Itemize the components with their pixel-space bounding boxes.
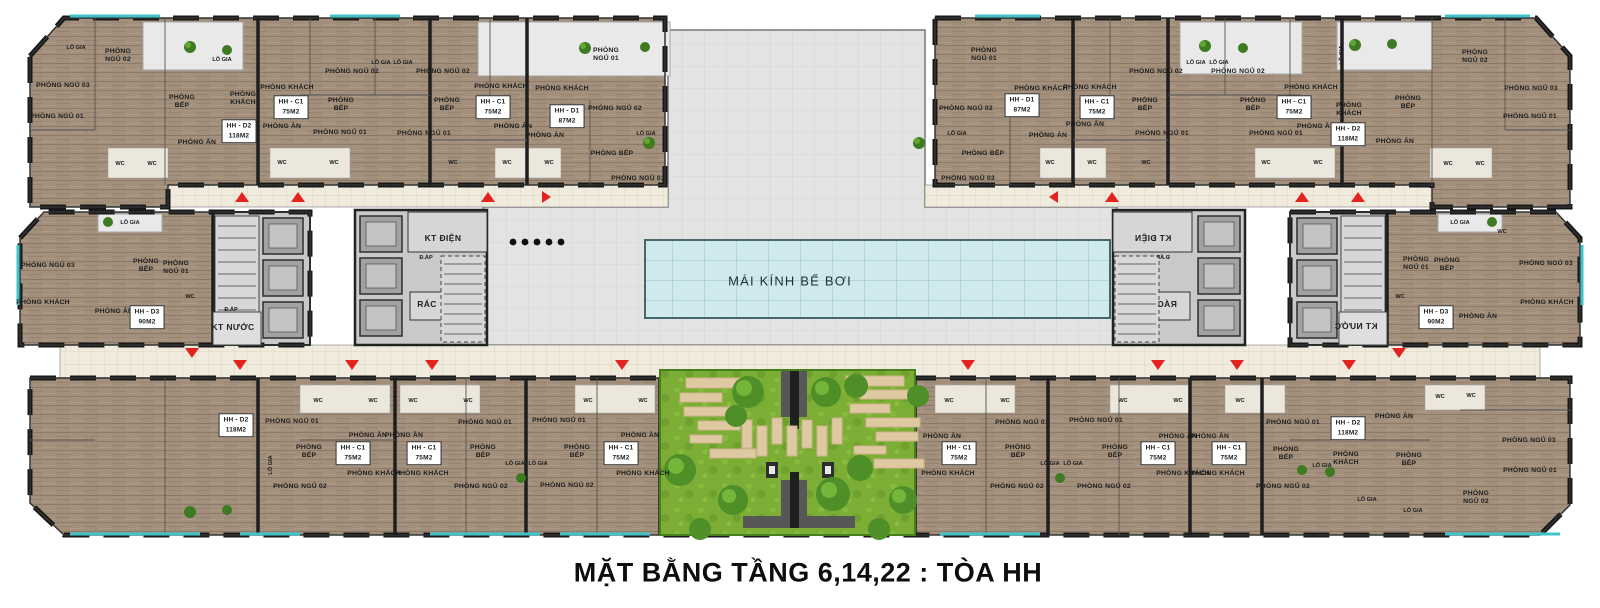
unit-code-label: HH - D1 87M2 xyxy=(1005,93,1040,117)
room-label: PHÒNG BẾP xyxy=(1102,444,1128,460)
room-label: PHÒNG NGỦ 03 xyxy=(1504,85,1558,93)
room-label: PHÒNG NGỦ 02 xyxy=(540,482,594,490)
room-label: PHÒNG ĂN xyxy=(178,139,216,147)
room-label: PHÒNG NGỦ 01 xyxy=(1266,419,1320,427)
room-label: PHÒNG NGỦ 01 xyxy=(458,419,512,427)
wc-label: WC xyxy=(448,160,457,166)
room-label: PHÒNG NGỦ 03 xyxy=(941,175,995,183)
service-room-label: Đ.ÁP xyxy=(1156,255,1169,261)
room-label: PHÒNG ĂN xyxy=(1191,433,1229,441)
room-label: PHÒNG NGỦ 03 xyxy=(36,82,90,90)
room-label: PHÒNG KHÁCH xyxy=(474,83,528,91)
room-label: PHÒNG NGỦ 01 xyxy=(1069,417,1123,425)
room-label: PHÒNG KHÁCH xyxy=(230,91,256,107)
room-label: PHÒNG BẾP xyxy=(1005,444,1031,460)
room-label: PHÒNG NGỦ 02 xyxy=(1077,483,1131,491)
room-label: PHÒNG ĂN xyxy=(349,432,387,440)
room-label: PHÒNG BẾP xyxy=(591,150,634,158)
room-label: PHÒNG NGỦ 02 xyxy=(1211,68,1265,76)
unit-code-label: HH - D2 118M2 xyxy=(222,119,257,143)
room-label: PHÒNG KHÁCH xyxy=(1520,299,1574,307)
room-label: PHÒNG ĂN xyxy=(1029,132,1067,140)
room-label: PHÒNG KHÁCH xyxy=(16,299,70,307)
room-label: PHÒNG KHÁCH xyxy=(260,84,314,92)
room-label: PHÒNG NGỦ 01 xyxy=(971,47,997,63)
unit-code-label: HH - C1 75M2 xyxy=(1277,95,1312,119)
room-label: PHÒNG ĂN xyxy=(1376,138,1414,146)
room-label: PHÒNG NGỦ 02 xyxy=(416,68,470,76)
service-room-label: KT ĐIỆN xyxy=(1135,234,1172,244)
loggia-label: LÔ GIA xyxy=(1063,461,1082,467)
service-room-label: KT NƯỚC xyxy=(1334,322,1377,332)
wc-label: WC xyxy=(277,160,286,166)
wc-label: WC xyxy=(1118,398,1127,404)
unit-code-label: HH - D2 118M2 xyxy=(1331,416,1366,440)
room-label: PHÒNG ĂN xyxy=(263,123,301,131)
unit-code-label: HH - C1 75M2 xyxy=(476,95,511,119)
wc-label: WC xyxy=(1497,229,1506,235)
wc-label: WC xyxy=(1000,398,1009,404)
unit-code-label: HH - C1 75M2 xyxy=(336,441,371,465)
unit-code-label: HH - D3 90M2 xyxy=(1419,305,1454,329)
room-label: PHÒNG KHÁCH xyxy=(1336,102,1362,118)
wc-label: WC xyxy=(1395,294,1404,300)
floor-plan-page: LÔ GIAPHÒNG NGỦ 02PHÒNG NGỦ 03PHÒNG NGỦ … xyxy=(0,0,1600,608)
wc-label: WC xyxy=(463,398,472,404)
room-label: PHÒNG KHÁCH xyxy=(1191,470,1245,478)
wc-label: WC xyxy=(638,398,647,404)
loggia-label: LÔ GIA xyxy=(1186,60,1205,66)
room-label: PHÒNG NGỦ 01 xyxy=(1135,130,1189,138)
loggia-label: LÔ GIA xyxy=(268,455,274,474)
room-label: PHÒNG ĂN xyxy=(923,433,961,441)
room-label: PHÒNG NGỦ 01 xyxy=(593,47,619,63)
service-room-label: KT ĐIỆN xyxy=(425,234,462,244)
room-label: PHÒNG BẾP xyxy=(1273,446,1299,462)
loggia-label: LÔ GIA xyxy=(1403,508,1422,514)
room-label: PHÒNG NGỦ 02 xyxy=(454,483,508,491)
room-label: PHÒNG ĂN xyxy=(494,123,532,131)
room-label: PHÒNG KHÁCH xyxy=(1014,85,1068,93)
room-label: PHÒNG BẾP xyxy=(1240,97,1266,113)
room-label: PHÒNG BẾP xyxy=(1396,452,1422,468)
room-label: PHÒNG NGỦ 01 xyxy=(1503,467,1557,475)
loggia-label: LÔ GIA xyxy=(1209,60,1228,66)
room-label: PHÒNG ĂN xyxy=(621,432,659,440)
room-label: PHÒNG KHÁCH xyxy=(921,470,975,478)
room-label: PHÒNG NGỦ 01 xyxy=(313,129,367,137)
wc-label: WC xyxy=(1087,160,1096,166)
loggia-label: LÔ GIA xyxy=(1357,497,1376,503)
room-label: PHÒNG BẾP xyxy=(133,258,159,274)
service-room-label: RÁC xyxy=(1157,300,1177,310)
service-room-label: Đ.ÁP xyxy=(419,255,432,261)
room-label: PHÒNG BẾP xyxy=(470,444,496,460)
room-label: PHÒNG ĂN xyxy=(95,308,133,316)
wc-label: WC xyxy=(1173,398,1182,404)
unit-code-label: HH - C1 75M2 xyxy=(1212,441,1247,465)
wc-label: WC xyxy=(313,398,322,404)
unit-code-label: HH - D3 90M2 xyxy=(130,305,165,329)
room-label: PHÒNG NGỦ 01 xyxy=(265,418,319,426)
room-label: PHÒNG NGỦ 02 xyxy=(1256,483,1310,491)
room-label: PHÒNG ĂN xyxy=(385,432,423,440)
unit-code-label: HH - C1 75M2 xyxy=(942,441,977,465)
unit-code-label: HH - C1 75M2 xyxy=(274,95,309,119)
loggia-label: LÔ GIA xyxy=(505,461,524,467)
wc-label: WC xyxy=(502,160,511,166)
room-label: PHÒNG BẾP xyxy=(169,94,195,110)
wc-label: WC xyxy=(1475,161,1484,167)
room-label: PHÒNG NGỦ 02 xyxy=(105,48,131,64)
plan-caption: MẶT BẰNG TẦNG 6,14,22 : TÒA HH xyxy=(574,558,1043,589)
room-label: PHÒNG NGỦ 01 xyxy=(995,419,1049,427)
room-label: PHÒNG BẾP xyxy=(1395,95,1421,111)
room-label: PHÒNG NGỦ 03 xyxy=(1502,437,1556,445)
room-label: PHÒNG BẾP xyxy=(296,444,322,460)
room-label: PHÒNG NGỦ 01 xyxy=(163,260,189,276)
wc-label: WC xyxy=(1313,160,1322,166)
loggia-label: LÔ GIA xyxy=(393,60,412,66)
wc-label: WC xyxy=(583,398,592,404)
room-label: PHÒNG NGỦ 02 xyxy=(325,68,379,76)
room-label: PHÒNG NGỦ 02 xyxy=(588,105,642,113)
room-label: PHÒNG NGỦ 02 xyxy=(1129,68,1183,76)
service-room-label: KT NƯỚC xyxy=(211,323,254,333)
room-label: PHÒNG KHÁCH xyxy=(616,470,670,478)
loggia-label: LÔ GIA xyxy=(120,220,139,226)
loggia-label: LÔ GIA xyxy=(1450,220,1469,226)
wc-label: WC xyxy=(1261,160,1270,166)
service-room-label: Đ.ÁP xyxy=(224,307,237,313)
unit-code-label: HH - D2 118M2 xyxy=(219,413,254,437)
room-label: PHÒNG NGỦ 03 xyxy=(1519,260,1573,268)
room-label: PHÒNG NGỦ 02 xyxy=(939,105,993,113)
room-label: PHÒNG NGỦ 02 xyxy=(990,483,1044,491)
room-label: PHÒNG NGỦ 01 xyxy=(30,113,84,121)
room-label: PHÒNG KHÁCH xyxy=(347,470,401,478)
unit-code-label: HH - D1 87M2 xyxy=(550,104,585,128)
room-label: PHÒNG BẾP xyxy=(962,150,1005,158)
loggia-label: LÔ GIA xyxy=(1312,463,1331,469)
wc-label: WC xyxy=(1443,161,1452,167)
loggia-label: LÔ GIA xyxy=(212,57,231,63)
wc-label: WC xyxy=(1466,393,1475,399)
loggia-label: LÔ GIA xyxy=(947,131,966,137)
room-label: PHÒNG NGỦ 03 xyxy=(611,175,665,183)
wc-label: WC xyxy=(1435,394,1444,400)
room-label: PHÒNG NGỦ 01 xyxy=(1249,130,1303,138)
room-label: PHÒNG NGỦ 01 xyxy=(397,130,451,138)
unit-code-label: HH - C1 75M2 xyxy=(1080,95,1115,119)
room-label: PHÒNG KHÁCH xyxy=(535,85,589,93)
wc-label: WC xyxy=(329,160,338,166)
room-label: PHÒNG KHÁCH xyxy=(1284,84,1338,92)
loggia-label: LÔ GIA xyxy=(371,60,390,66)
room-label: PHÒNG ĂN xyxy=(1066,121,1104,129)
room-label: PHÒNG ĂN xyxy=(526,132,564,140)
wc-label: WC xyxy=(368,398,377,404)
unit-code-label: HH - C1 75M2 xyxy=(1141,441,1176,465)
room-label: PHÒNG NGỦ 02 xyxy=(1463,490,1489,506)
room-label: PHÒNG BẾP xyxy=(434,97,460,113)
wc-label: WC xyxy=(185,294,194,300)
room-label: PHÒNG BẾP xyxy=(328,97,354,113)
plan-labels: LÔ GIAPHÒNG NGỦ 02PHÒNG NGỦ 03PHÒNG NGỦ … xyxy=(0,0,1600,608)
room-label: PHÒNG ĂN xyxy=(1459,313,1497,321)
room-label: PHÒNG BẾP xyxy=(564,444,590,460)
loggia-label: LÔ GIA xyxy=(528,461,547,467)
room-label: PHÒNG NGỦ 02 xyxy=(273,483,327,491)
wc-label: WC xyxy=(115,161,124,167)
loggia-label: LÔ GIA xyxy=(1040,461,1059,467)
unit-code-label: HH - C1 75M2 xyxy=(604,441,639,465)
service-room-label: RÁC xyxy=(417,300,437,310)
room-label: PHÒNG ĂN xyxy=(1375,413,1413,421)
loggia-label: LÔ GIA xyxy=(1339,45,1345,64)
room-label: PHÒNG NGỦ 01 xyxy=(1403,256,1429,272)
room-label: PHÒNG BẾP xyxy=(1434,257,1460,273)
wc-label: WC xyxy=(1045,160,1054,166)
room-label: PHÒNG NGỦ 01 xyxy=(1503,113,1557,121)
wc-label: WC xyxy=(1141,160,1150,166)
wc-label: WC xyxy=(147,161,156,167)
room-label: PHÒNG KHÁCH xyxy=(1063,84,1117,92)
room-label: PHÒNG NGỦ 02 xyxy=(1462,49,1488,65)
unit-code-label: HH - C1 75M2 xyxy=(407,441,442,465)
room-label: PHÒNG KHÁCH xyxy=(1333,451,1359,467)
wc-label: WC xyxy=(408,398,417,404)
wc-label: WC xyxy=(1235,398,1244,404)
wc-label: WC xyxy=(544,160,553,166)
pool-roof-label: MÁI KÍNH BỂ BƠI xyxy=(728,275,852,290)
unit-code-label: HH - D2 118M2 xyxy=(1331,122,1366,146)
room-label: PHÒNG KHÁCH xyxy=(395,470,449,478)
wc-label: WC xyxy=(944,398,953,404)
room-label: PHÒNG BẾP xyxy=(1132,97,1158,113)
room-label: PHÒNG NGỦ 03 xyxy=(21,262,75,270)
loggia-label: LÔ GIA xyxy=(636,131,655,137)
loggia-label: LÔ GIA xyxy=(66,45,85,51)
room-label: PHÒNG NGỦ 01 xyxy=(532,417,586,425)
